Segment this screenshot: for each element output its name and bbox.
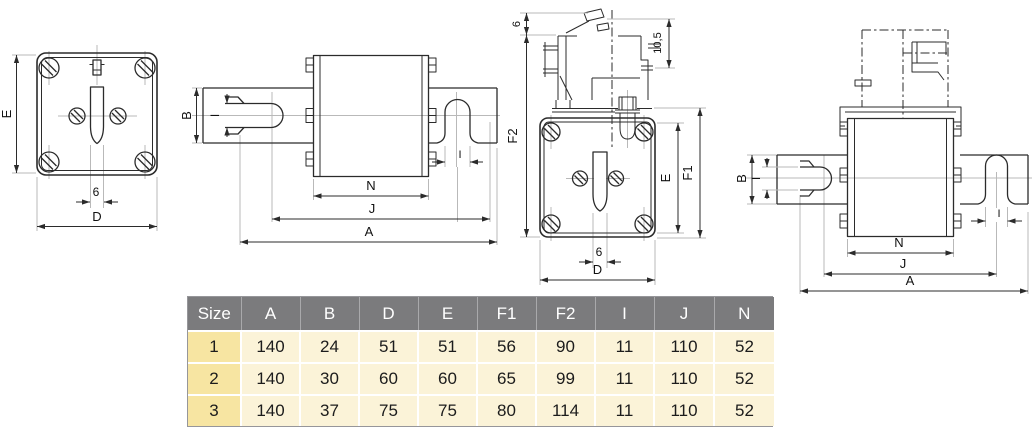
fuse-plate <box>540 118 655 237</box>
table-cell: 11 <box>595 395 654 426</box>
centerlines <box>49 45 145 208</box>
actuator <box>597 23 609 31</box>
fuse-body <box>840 107 961 237</box>
table-cell: 114 <box>536 395 595 426</box>
dim-label-i-right: I <box>997 208 1000 220</box>
table-cell: 110 <box>654 331 714 363</box>
table-row: 3 140 37 75 75 80 114 11 110 52 <box>188 395 774 426</box>
indicator-slot <box>91 87 104 144</box>
dim-label-n: N <box>366 178 375 193</box>
table-cell: 11 <box>595 363 654 395</box>
table-cell-size: 3 <box>188 395 241 426</box>
dim-label-n: N <box>894 235 903 250</box>
dim-label-i: I <box>208 114 222 117</box>
table-cell: 56 <box>477 331 536 363</box>
dimension-E: E <box>0 55 36 173</box>
table-cell: 110 <box>654 395 714 426</box>
dim-label-a: A <box>906 273 915 288</box>
dimension-A: A <box>800 273 1028 291</box>
dim-label-6-top: 6 <box>511 21 523 27</box>
table-cell: 60 <box>418 363 477 395</box>
table-cell: 140 <box>241 331 300 363</box>
front-view-drawing: E 6 D <box>0 0 175 240</box>
column-header-d: D <box>359 297 418 331</box>
dim-label-d: D <box>593 262 602 277</box>
micro-switch <box>543 9 660 112</box>
dim-label-b: B <box>734 174 749 183</box>
dim-label-e: E <box>658 173 673 182</box>
dim-label-b: B <box>179 111 194 120</box>
lever-roller <box>584 9 604 21</box>
table-cell: 11 <box>595 331 654 363</box>
table-cell: 52 <box>714 363 774 395</box>
table-cell: 110 <box>654 363 714 395</box>
switch-outline <box>855 30 948 118</box>
dimension-N: N <box>314 178 429 196</box>
table-cell: 51 <box>359 331 418 363</box>
dimension-N: N <box>848 235 954 253</box>
dim-label-i-right: I <box>458 149 461 161</box>
column-header-j: J <box>654 297 714 331</box>
column-header-i: I <box>595 297 654 331</box>
dimensions-table: Size A B D E F1 F2 I J N 1 140 24 51 51 … <box>187 296 773 427</box>
table-cell: 80 <box>477 395 536 426</box>
table-row: 1 140 24 51 51 56 90 11 110 52 <box>188 331 774 363</box>
table-cell: 90 <box>536 331 595 363</box>
column-header-f2: F2 <box>536 297 595 331</box>
table-cell: 75 <box>359 395 418 426</box>
blade-contacts <box>777 155 1028 204</box>
dimension-F2: F2 <box>505 35 540 237</box>
dim-label-j: J <box>900 256 907 271</box>
dim-label-f2: F2 <box>505 128 520 143</box>
table-cell: 140 <box>241 363 300 395</box>
dim-label-i: I <box>749 177 763 180</box>
column-header-size: Size <box>188 297 241 331</box>
dim-label-d: D <box>92 209 101 224</box>
centerlines <box>192 92 500 245</box>
dimension-slot-width: 6 <box>579 245 621 262</box>
table-row: 2 140 30 60 60 65 99 11 110 52 <box>188 363 774 395</box>
grip-lugs <box>840 122 961 228</box>
dimension-F1: F1 <box>654 108 706 238</box>
clamp-bracket <box>840 107 961 126</box>
dim-label-10-5: 10,5 <box>652 32 664 53</box>
centerlines <box>745 155 1032 294</box>
table-cell: 52 <box>714 331 774 363</box>
column-header-f1: F1 <box>477 297 536 331</box>
dimension-I-right: I <box>432 149 483 162</box>
side-view-drawing: B I I N J A <box>178 40 500 250</box>
table-cell: 140 <box>241 395 300 426</box>
dim-label-e: E <box>0 109 14 118</box>
table-cell: 51 <box>418 331 477 363</box>
column-header-a: A <box>241 297 300 331</box>
table-cell: 52 <box>714 395 774 426</box>
dim-label-j: J <box>369 201 376 216</box>
table-cell: 99 <box>536 363 595 395</box>
dim-label-a: A <box>365 224 374 239</box>
table-cell-size: 2 <box>188 363 241 395</box>
indicator-slot <box>593 152 607 211</box>
table-cell: 75 <box>418 395 477 426</box>
dim-label-6: 6 <box>93 185 100 199</box>
table-cell: 24 <box>300 331 359 363</box>
table-cell: 60 <box>359 363 418 395</box>
side-view-with-switch-drawing: B I I N J A <box>730 5 1032 295</box>
table-cell: 37 <box>300 395 359 426</box>
table-header-row: Size A B D E F1 F2 I J N <box>188 297 774 331</box>
dimension-I-right: I <box>971 208 1022 221</box>
dimension-J: J <box>824 256 997 274</box>
table-cell-size: 1 <box>188 331 241 363</box>
column-header-n: N <box>714 297 774 331</box>
column-header-b: B <box>300 297 359 331</box>
dimension-slot-width: 6 <box>76 185 118 202</box>
dim-label-6-bottom: 6 <box>596 245 603 259</box>
front-view-with-switch-drawing: 6 F2 10,5 E F1 6 D <box>500 5 710 290</box>
dim-label-f1: F1 <box>680 165 695 180</box>
fuse-dimension-drawing-page: E 6 D <box>0 0 1032 427</box>
corner-screws <box>542 123 653 233</box>
dimension-A: A <box>240 224 497 242</box>
grip-lugs <box>306 58 436 166</box>
dimension-top-gap: 6 <box>511 13 588 35</box>
column-header-e: E <box>418 297 477 331</box>
table-cell: 30 <box>300 363 359 395</box>
table-cell: 65 <box>477 363 536 395</box>
